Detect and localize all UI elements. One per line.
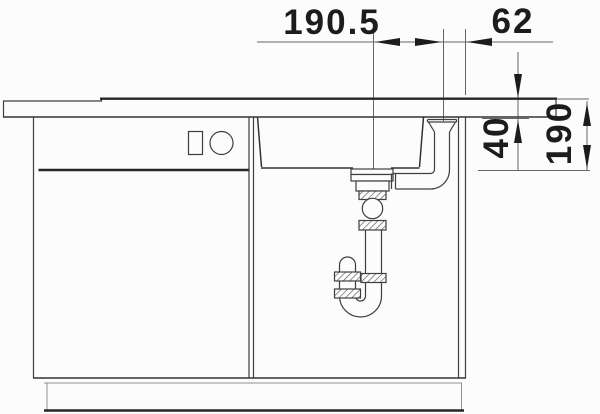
siphon-trap [335,257,387,317]
cabinet [33,117,466,411]
strainer-flange [351,175,393,182]
elbow-outer [396,132,450,189]
strainer-seal [351,169,393,175]
sink-technical-drawing: 190.5 62 40 190 [0,0,600,414]
front-panel [39,132,250,171]
trap-clamp-lower [335,289,361,298]
coupling-nut [359,221,386,231]
trap-clamp-upper [335,272,361,281]
arrowhead-up-190 [583,103,591,126]
tailpipe-clamp [361,274,386,283]
arrowhead-right [415,38,442,46]
ball-joint [362,198,382,218]
overflow-funnel [428,120,457,133]
dim-label-62: 62 [481,2,545,42]
overflow-pipe [392,120,457,190]
control-window [189,132,203,155]
trap-u-bend-outer [340,296,382,317]
dim-label-190: 190 [540,73,580,193]
countertop [3,98,557,118]
drawing-canvas [0,0,600,414]
arrowhead-down-190 [583,145,591,169]
dim-label-190-5: 190.5 [250,3,414,43]
sink-bowl [258,117,424,168]
dim-label-40: 40 [477,77,517,197]
trap-cap [340,257,356,265]
strainer-body [356,181,389,191]
control-knob-icon [210,132,233,155]
